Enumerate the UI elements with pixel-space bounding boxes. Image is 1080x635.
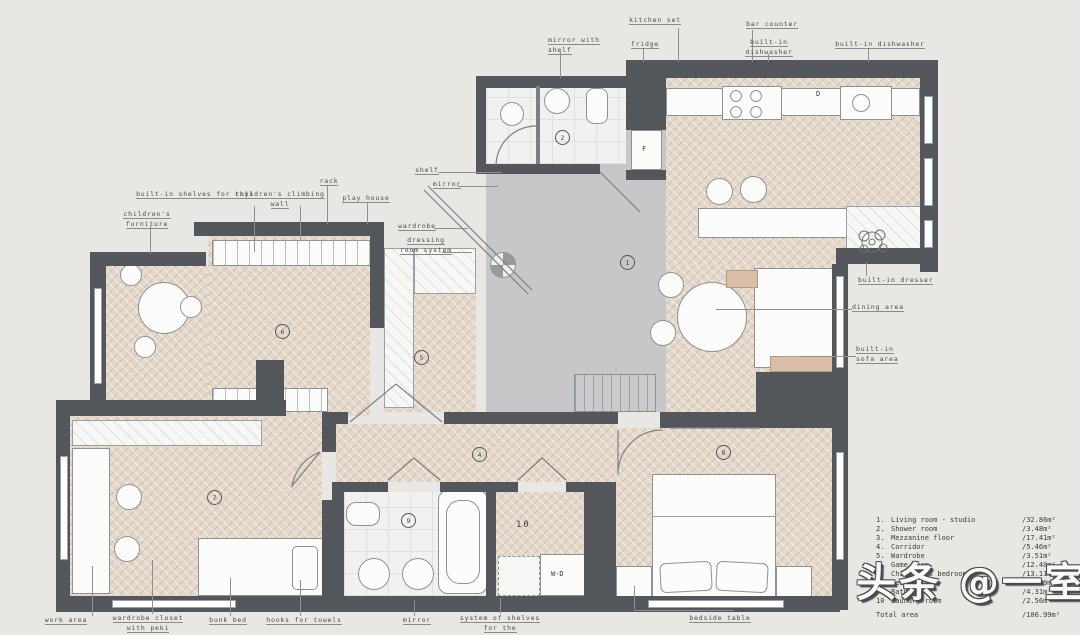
- label-hooks-for-towels: hooks for towels: [258, 616, 350, 626]
- washer-dryer-tag: W-D: [551, 570, 564, 578]
- leader-line: [300, 580, 301, 616]
- room-number-children: 7: [207, 490, 222, 505]
- floor-plan-canvas: 1 2 4 5 6 7 8 9 10 F D W-D kitchen set m…: [0, 0, 1080, 635]
- label-built-in-dresser: built-in dresser: [858, 276, 950, 286]
- label-wardrobe: wardrobe: [390, 222, 444, 232]
- label-shelf: shelf: [408, 166, 446, 176]
- legend-row: 2.Shower room/3.48m²: [876, 525, 1076, 534]
- label-mirror-bottom: mirror: [396, 616, 438, 626]
- leader-line: [300, 206, 301, 240]
- room-number-living: 1: [620, 255, 635, 270]
- leader-line: [716, 309, 852, 310]
- leader-line: [868, 48, 869, 62]
- label-dressing-room-system: dressing room system: [398, 236, 454, 256]
- room-number-bedroom: 8: [716, 445, 731, 460]
- legend-row: 1.Living room - studio/32.86m²: [876, 516, 1076, 525]
- leader-line: [866, 262, 867, 276]
- shower-door: [600, 172, 640, 212]
- label-mirror-with-shelf: mirror with shelf: [548, 36, 608, 56]
- corridor-double-door: [350, 384, 442, 422]
- label-bedside-table: bedside table: [676, 614, 764, 624]
- leader-line: [560, 52, 561, 78]
- legend-row: 3.Mezzanine floor/17.41m²: [876, 534, 1076, 543]
- leader-line: [634, 610, 734, 611]
- label-bar-counter: bar counter: [737, 20, 807, 30]
- label-childrens-furniture: children's furniture: [110, 210, 184, 230]
- dishwasher-tag: D: [816, 90, 820, 98]
- room-number-wardrobe: 5: [414, 350, 429, 365]
- label-wardrobe-closet: wardrobe closet with peki: [104, 614, 192, 634]
- leader-line: [643, 48, 644, 62]
- watermark: 头条 @一室: [856, 550, 1080, 608]
- label-built-in-dishwasher-2: built-in dishwasher: [828, 40, 932, 50]
- leader-line: [254, 206, 255, 252]
- label-built-in-sofa-area: built-in sofa area: [856, 345, 908, 365]
- bedroom-door-arc: [618, 430, 662, 474]
- leader-line: [500, 598, 501, 614]
- leader-line: [152, 560, 153, 614]
- bathroom-door: [388, 458, 440, 480]
- leader-line: [800, 356, 856, 357]
- label-system-of-shelves: system of shelves for the: [452, 614, 548, 634]
- plant-icon: [859, 230, 887, 253]
- room-number-bathroom: 9: [401, 513, 416, 528]
- room-number-shower: 2: [555, 130, 570, 145]
- leader-line: [634, 586, 635, 610]
- label-childrens-climbing-wall: children's climbing wall: [234, 190, 326, 210]
- leader-line: [367, 202, 368, 224]
- label-kitchen-set: kitchen set: [615, 16, 695, 26]
- room-number-corridor: 4: [472, 447, 487, 462]
- leader-line: [150, 226, 151, 254]
- children-door-arc: [292, 452, 320, 486]
- label-dining-area: dining area: [852, 303, 922, 313]
- label-built-in-dishwasher-1: built-in dishwasher: [735, 38, 803, 58]
- legend-total: Total area/106.99m²: [876, 611, 1076, 620]
- laundry-door: [518, 458, 566, 480]
- leader-line: [230, 578, 231, 616]
- leader-line: [327, 186, 328, 224]
- leader-line: [92, 566, 93, 616]
- label-mirror-top: mirror: [426, 180, 468, 190]
- room-number-laundry: 10: [516, 520, 531, 530]
- leader-line: [438, 172, 502, 173]
- leader-line: [414, 600, 415, 616]
- label-rack: rack: [312, 177, 346, 187]
- label-bunk-bed: bunk bed: [200, 616, 256, 626]
- label-play-house: play house: [334, 194, 398, 204]
- fridge-tag: F: [642, 145, 646, 153]
- leader-line: [678, 28, 679, 62]
- niche-door-arc: [496, 126, 536, 166]
- label-work-area: work area: [36, 616, 96, 626]
- room-number-game: 6: [275, 324, 290, 339]
- label-fridge: fridge: [622, 40, 668, 50]
